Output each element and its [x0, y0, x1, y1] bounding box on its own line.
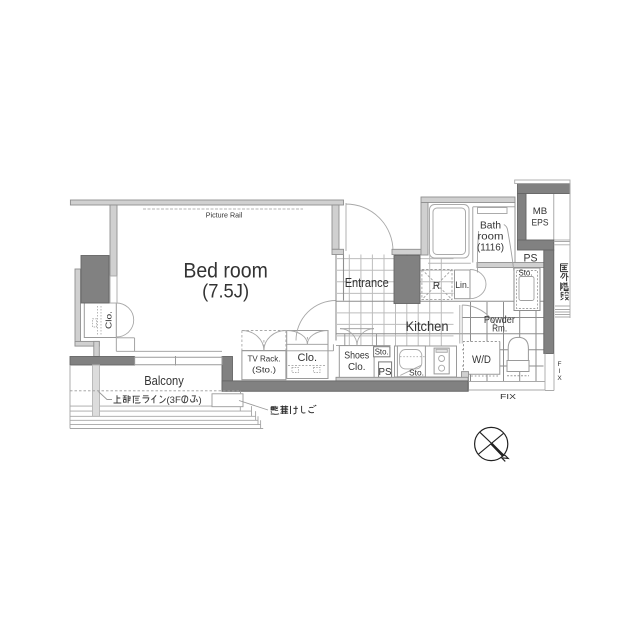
svg-text:PS: PS [379, 367, 392, 378]
svg-text:Balcony: Balcony [144, 373, 184, 388]
svg-text:Clo.: Clo. [348, 362, 366, 373]
svg-text:Picture Rail: Picture Rail [206, 210, 243, 219]
svg-text:Sto.: Sto. [409, 367, 424, 377]
svg-text:W/D: W/D [472, 354, 491, 366]
svg-text:Lin.: Lin. [455, 280, 469, 291]
svg-text:Bed room: Bed room [183, 259, 268, 283]
svg-text:(Sto.): (Sto.) [252, 365, 276, 375]
svg-text:(7.5J): (7.5J) [202, 282, 249, 303]
svg-text:Shoes: Shoes [344, 351, 369, 362]
svg-text:TV Rack.: TV Rack. [248, 354, 281, 364]
svg-text:Entrance: Entrance [345, 275, 389, 290]
svg-text:Rm.: Rm. [492, 323, 507, 335]
svg-text:EPS: EPS [532, 218, 549, 229]
svg-text:Kitchen: Kitchen [406, 319, 449, 334]
svg-text:Sto.: Sto. [375, 348, 389, 357]
svg-text:Clo.: Clo. [298, 352, 318, 364]
svg-text:I: I [559, 368, 561, 375]
svg-text:Sto.: Sto. [519, 268, 533, 277]
svg-text:MB: MB [533, 206, 548, 217]
svg-text:R: R [433, 281, 440, 292]
svg-text:(1116): (1116) [477, 242, 504, 254]
svg-text:Clo.: Clo. [104, 311, 114, 329]
svg-text:F: F [558, 361, 562, 368]
svg-text:): ) [199, 395, 202, 406]
svg-text:PS: PS [524, 253, 538, 265]
svg-text:(3F: (3F [167, 395, 181, 406]
svg-text:X: X [557, 375, 562, 382]
svg-text:FIX: FIX [500, 392, 516, 401]
